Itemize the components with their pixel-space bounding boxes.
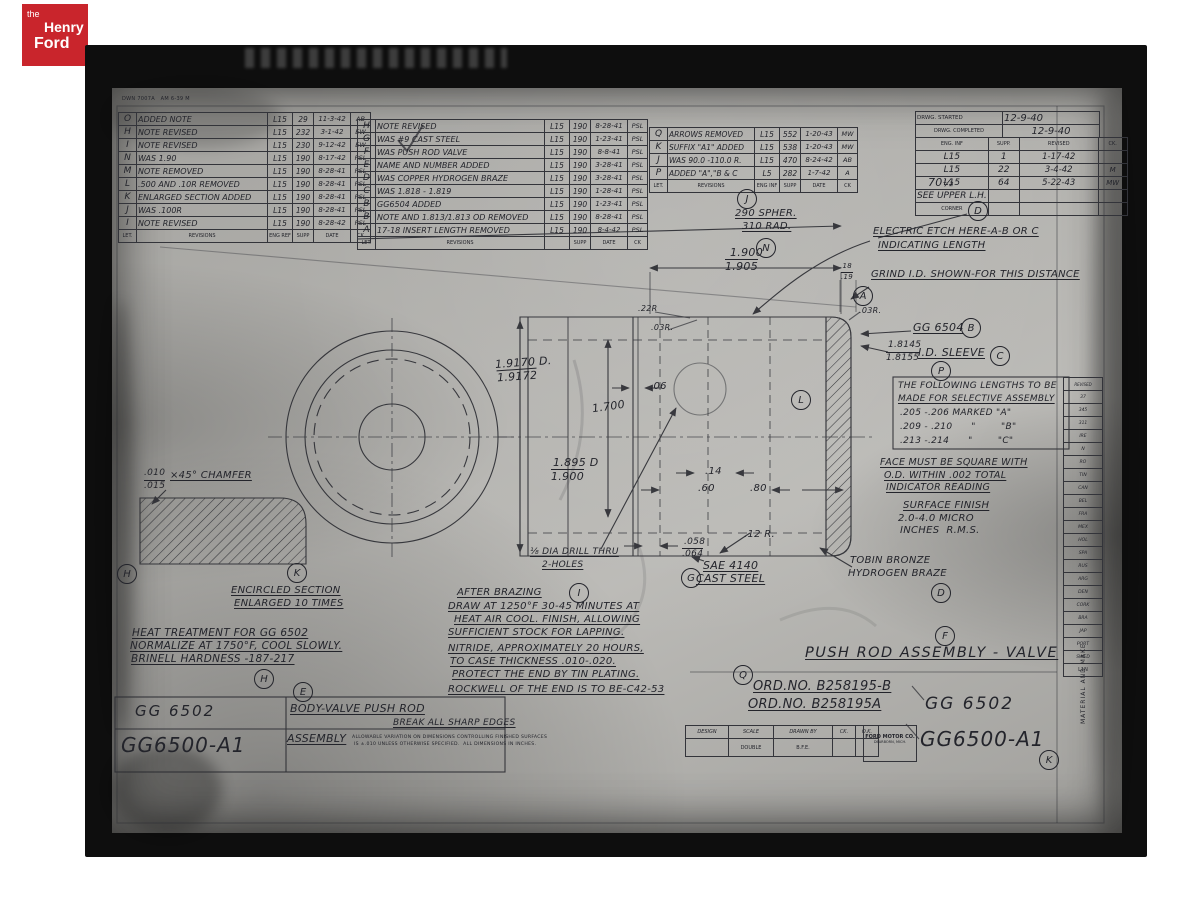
table-cell: 190 — [293, 191, 314, 204]
note-rockwell: ROCKWELL OF THE END IS TO BE-C42-53 — [448, 684, 664, 695]
table-cell: 8-8-41 — [591, 146, 628, 159]
note-surface-1: SURFACE FINISH — [903, 500, 989, 511]
table-cell: CK — [628, 237, 648, 250]
table-cell: 1-17-42 — [1019, 151, 1098, 164]
table-cell: 190 — [293, 152, 314, 165]
form-number: DWN 7007A AM 6-39 M — [122, 96, 190, 102]
table-cell: L15 — [268, 204, 293, 217]
title-gg6502: GG 6502 — [925, 694, 1014, 714]
table-cell — [1098, 151, 1127, 164]
note-etch-2: INDICATING LENGTH — [878, 240, 986, 251]
table-cell: DATE — [591, 237, 628, 250]
dim-length-upper: 1.900 — [730, 246, 763, 259]
table-cell: L15 — [755, 154, 780, 167]
distribution-strip-table: REVISED37345311IRENROTINCANBELFRAMEXHOLS… — [1063, 377, 1103, 677]
scan-blotch — [112, 745, 222, 833]
table-cell: LET. — [119, 230, 137, 243]
table-cell: MW — [838, 141, 858, 154]
note-nitride-2: TO CASE THICKNESS .010-.020. — [450, 656, 616, 667]
table-cell: WAS .100R — [137, 204, 268, 217]
table-cell: M — [119, 165, 137, 178]
dim-19: .19 — [841, 272, 853, 281]
table-cell: 1-7-42 — [801, 167, 838, 180]
table-cell: CK. — [1098, 138, 1127, 151]
ford-motor-co-cell: FORD MOTOR CO. DEARBORN, MICH. — [863, 725, 917, 762]
dim-60: .60 — [698, 483, 715, 494]
table-cell: 552 — [780, 128, 801, 141]
part-number-gg6500a1: GG6500-A1 — [121, 733, 246, 757]
table-cell: L15 — [545, 224, 570, 237]
note-nitride-1: NITRIDE, APPROXIMATELY 20 HOURS, — [448, 643, 644, 654]
table-cell: 8-4-42 — [591, 224, 628, 237]
table-cell: 8-28-42 — [314, 217, 351, 230]
table-cell: WAS 1.90 — [137, 152, 268, 165]
note-id-sleeve: I.D. SLEEVE — [918, 346, 985, 359]
table-cell: 8-24-42 — [801, 154, 838, 167]
dim-12r: .12 R. — [744, 529, 775, 540]
note-selective-3: .205 -.206 MARKED "A" — [900, 408, 1011, 418]
note-surface-3: INCHES R.M.S. — [900, 525, 980, 536]
table-cell: 8-28-41 — [591, 211, 628, 224]
table-cell: MW — [1098, 177, 1127, 190]
table-cell — [833, 739, 856, 757]
table-cell: 190 — [570, 146, 591, 159]
note-sae-1: SAE 4140 — [703, 559, 758, 572]
table-cell: 22 — [988, 164, 1019, 177]
dim-chamfer-lower: .015 — [144, 480, 165, 491]
callout-K: K — [287, 563, 307, 583]
table-cell: 3-28-41 — [591, 159, 628, 172]
table-cell: REVISED — [1064, 378, 1103, 391]
note-selective-1: THE FOLLOWING LENGTHS TO BE — [898, 381, 1057, 391]
table-cell: 190 — [293, 217, 314, 230]
table-cell: 8-28-41 — [314, 178, 351, 191]
table-cell: ENLARGED SECTION ADDED — [137, 191, 268, 204]
table-cell: A — [358, 224, 376, 237]
table-cell: C — [358, 185, 376, 198]
table-cell: L15 — [545, 133, 570, 146]
table-cell: 190 — [570, 211, 591, 224]
table-cell: PSL — [628, 120, 648, 133]
table-cell: N — [1064, 443, 1103, 456]
table-cell: 230 — [293, 139, 314, 152]
note-tobin-1: TOBIN BRONZE — [850, 555, 930, 566]
table-cell: SUPP — [570, 237, 591, 250]
table-cell: L15 — [545, 146, 570, 159]
table-cell: CK. — [833, 726, 856, 739]
table-cell: L15 — [545, 211, 570, 224]
table-cell: 190 — [570, 120, 591, 133]
note-chamfer: ×45° CHAMFER — [170, 470, 252, 481]
dim-sleeve-upper: 1.8145 — [888, 340, 921, 350]
table-cell: L15 — [268, 191, 293, 204]
dim-064: .064 — [682, 548, 703, 559]
scan-blotch — [108, 300, 134, 730]
table-cell — [988, 190, 1019, 203]
dim-sphere-rad2: 310 RAD. — [742, 221, 791, 232]
table-cell: DRWG. STARTED — [916, 112, 1003, 125]
dim-06: .06 — [650, 381, 667, 392]
table-cell: DRWG. COMPLETED — [916, 125, 1003, 138]
table-cell: PSL — [628, 159, 648, 172]
logo-ford: Ford — [34, 36, 70, 52]
table-cell: PSL — [628, 185, 648, 198]
table-cell: 190 — [293, 204, 314, 217]
callout-E: E — [293, 682, 313, 702]
note-selective-5: .213 -.214 " "C" — [900, 436, 1013, 446]
table-cell: 311 — [1064, 417, 1103, 430]
note-braz-1: DRAW AT 1250°F 30-45 MINUTES AT — [448, 601, 639, 612]
drawing-dates-table: DRWG. STARTED12-9-40DRWG. COMPLETED12-9-… — [915, 111, 1100, 138]
note-nitride-3: PROTECT THE END BY TIN PLATING. — [452, 669, 640, 680]
ord-number-2: ORD.NO. B258195A — [748, 697, 881, 712]
table-cell: PSL — [628, 133, 648, 146]
table-cell: L15 — [268, 165, 293, 178]
table-cell: TIN — [1064, 469, 1103, 482]
revision-table-middle: HNOTE REVISEDL151908-28-41PSLGWAS #9 CAS… — [357, 119, 648, 250]
note-break-edges: BREAK ALL SHARP EDGES — [393, 718, 516, 728]
table-cell: DATE — [314, 230, 351, 243]
table-cell: MEX — [1064, 521, 1103, 534]
table-cell: F — [358, 146, 376, 159]
table-cell: P — [650, 167, 668, 180]
note-heat-3: BRINELL HARDNESS -187-217 — [131, 653, 295, 665]
table-cell: 1 — [988, 151, 1019, 164]
table-cell: BRA — [1064, 612, 1103, 625]
table-cell: Q — [650, 128, 668, 141]
note-selective-2: MADE FOR SELECTIVE ASSEMBLY — [898, 394, 1055, 404]
table-cell: 5-22-43 — [1019, 177, 1098, 190]
table-cell: L15 — [916, 164, 989, 177]
dim-bore-lower: 1.900 — [551, 469, 584, 483]
table-cell: 1-20-43 — [801, 128, 838, 141]
table-cell: SUPP. — [988, 138, 1019, 151]
table-cell: 190 — [570, 159, 591, 172]
table-cell: L15 — [268, 178, 293, 191]
part-number-gg6502: GG 6502 — [135, 702, 215, 720]
callout-H2: H — [254, 669, 274, 689]
table-cell: K — [119, 191, 137, 204]
table-cell: IRE — [1064, 430, 1103, 443]
dim-chamfer-upper: .010 — [144, 468, 165, 478]
table-cell: 1-28-41 — [591, 185, 628, 198]
table-cell: SPA — [1064, 547, 1103, 560]
table-cell: PSL — [628, 146, 648, 159]
note-braz-3: SUFFICIENT STOCK FOR LAPPING. — [448, 627, 624, 638]
table-cell: NOTE REVISED — [376, 120, 545, 133]
title-block-table: DESIGNSCALEDRAWN BYCK.O.K.DOUBLEB.F.E. — [685, 725, 879, 757]
note-after-brazing: AFTER BRAZING — [457, 587, 542, 598]
table-cell: HOL — [1064, 534, 1103, 547]
table-cell: DEN — [1064, 586, 1103, 599]
table-cell: JAP — [1064, 625, 1103, 638]
table-cell: 538 — [780, 141, 801, 154]
table-cell: L15 — [268, 126, 293, 139]
table-cell: B — [358, 211, 376, 224]
table-cell: L15 — [755, 128, 780, 141]
logo-the: the — [27, 10, 40, 19]
table-cell: N — [119, 152, 137, 165]
dim-length-lower: 1.905 — [725, 259, 758, 273]
callout-H: H — [117, 564, 137, 584]
table-cell: B.F.E. — [774, 739, 833, 757]
part-name-body: BODY-VALVE PUSH ROD — [290, 702, 425, 715]
table-cell: RO — [1064, 456, 1103, 469]
table-cell: L15 — [545, 172, 570, 185]
table-cell: O — [119, 113, 137, 126]
table-cell: L15 — [916, 151, 989, 164]
table-cell: GG6504 ADDED — [376, 198, 545, 211]
table-cell: 190 — [570, 133, 591, 146]
note-tobin-2: HYDROGEN BRAZE — [848, 568, 947, 579]
table-cell: ARROWS REMOVED — [668, 128, 755, 141]
dim-18: .18 — [840, 262, 852, 270]
callout-F: F — [935, 626, 955, 646]
callout-C: C — [990, 346, 1010, 366]
table-cell: 345 — [1064, 404, 1103, 417]
table-cell: 232 — [293, 126, 314, 139]
note-etch-1: ELECTRIC ETCH HERE-A-B OR C — [873, 226, 1039, 237]
table-cell: CAN — [1064, 482, 1103, 495]
table-cell: L15 — [268, 113, 293, 126]
note-surface-2: 2.0-4.0 MICRO — [898, 513, 974, 524]
table-cell: 190 — [293, 165, 314, 178]
table-cell: WAS 90.0 -110.0 R. — [668, 154, 755, 167]
table-cell: ADDED "A","B & C — [668, 167, 755, 180]
dim-058: .058 — [684, 537, 705, 547]
table-cell: L15 — [268, 152, 293, 165]
table-cell: J — [650, 154, 668, 167]
table-cell: LET. — [650, 180, 668, 193]
note-drill2: 2-HOLES — [542, 560, 583, 570]
table-cell: K — [650, 141, 668, 154]
table-cell: .500 AND .10R REMOVED — [137, 178, 268, 191]
handwritten-70: 70½ — [928, 176, 954, 189]
table-cell: M — [1098, 164, 1127, 177]
table-cell: E — [358, 159, 376, 172]
table-cell: 29 — [293, 113, 314, 126]
dim-03r-right: .03R. — [859, 306, 881, 315]
callout-I: I — [569, 583, 589, 603]
table-cell — [545, 237, 570, 250]
table-cell: A — [838, 167, 858, 180]
callout-B: B — [961, 318, 981, 338]
note-drill: ⅛ DIA DRILL THRU — [530, 547, 619, 557]
table-cell: 12-9-40 — [1003, 112, 1100, 125]
table-cell: 17-18 INSERT LENGTH REMOVED — [376, 224, 545, 237]
henry-ford-logo: the Henry Ford — [22, 4, 88, 66]
table-cell: L15 — [268, 139, 293, 152]
table-cell: LET. — [358, 237, 376, 250]
table-cell: L15 — [268, 217, 293, 230]
table-cell: L — [119, 178, 137, 191]
callout-L: L — [791, 390, 811, 410]
table-cell: L5 — [755, 167, 780, 180]
table-cell: WAS 1.818 - 1.819 — [376, 185, 545, 198]
table-cell: WAS #9 CAST STEEL — [376, 133, 545, 146]
table-cell: 37 — [1064, 391, 1103, 404]
note-encircled-1: ENCIRCLED SECTION — [231, 585, 341, 596]
table-cell: L15 — [545, 159, 570, 172]
table-cell: DOUBLE — [729, 739, 774, 757]
table-cell — [1098, 203, 1127, 216]
part-name-assembly: ASSEMBLY — [287, 732, 346, 745]
table-cell: NAME AND NUMBER ADDED — [376, 159, 545, 172]
table-cell: WAS PUSH ROD VALVE — [376, 146, 545, 159]
callout-K2: K — [1039, 750, 1059, 770]
table-cell: 8-17-42 — [314, 152, 351, 165]
dim-od-lower: 1.9172 — [497, 368, 538, 385]
table-cell: I — [119, 139, 137, 152]
table-cell: L15 — [545, 120, 570, 133]
table-cell: SUPP — [293, 230, 314, 243]
table-cell: H — [358, 120, 376, 133]
table-cell: ENG INF — [755, 180, 780, 193]
table-cell: RUS — [1064, 560, 1103, 573]
table-cell: ENG REF — [268, 230, 293, 243]
table-cell: SUFFIX "A1" ADDED — [668, 141, 755, 154]
dim-sphere-rad: 290 SPHER. — [735, 208, 797, 219]
note-selective-4: .209 - .210 " "B" — [900, 422, 1016, 432]
table-cell: SUPP — [780, 180, 801, 193]
table-cell: I — [119, 217, 137, 230]
dim-80: .80 — [750, 483, 767, 494]
callout-P: P — [931, 361, 951, 381]
table-cell: NOTE REVISED — [137, 126, 268, 139]
table-cell: 9-12-42 — [314, 139, 351, 152]
note-grind: GRIND I.D. SHOWN-FOR THIS DISTANCE — [871, 269, 1080, 280]
table-cell: 1-23-41 — [591, 198, 628, 211]
table-cell: 64 — [988, 177, 1019, 190]
table-cell: WAS COPPER HYDROGEN BRAZE — [376, 172, 545, 185]
callout-D2: D — [931, 583, 951, 603]
table-cell: DESIGN — [686, 726, 729, 739]
material-and-make-label: MATERIAL AND MAKE — [1080, 642, 1087, 724]
table-cell: 190 — [570, 198, 591, 211]
note-heat-2: NORMALIZE AT 1750°F, COOL SLOWLY. — [130, 640, 342, 652]
table-cell: 8-28-41 — [314, 191, 351, 204]
table-cell: 3-28-41 — [591, 172, 628, 185]
table-cell: J — [119, 204, 137, 217]
table-cell: CORK — [1064, 599, 1103, 612]
callout-J: J — [737, 189, 757, 209]
table-cell: SCALE — [729, 726, 774, 739]
table-cell: 3-4-42 — [1019, 164, 1098, 177]
table-cell: 190 — [570, 185, 591, 198]
table-cell: DRAWN BY — [774, 726, 833, 739]
dim-03r-left: .03R. — [651, 323, 673, 332]
fine-print-2: IS ±.010 UNLESS OTHERWISE SPECIFIED. ALL… — [354, 742, 536, 747]
table-cell: L15 — [545, 185, 570, 198]
callout-D: D — [968, 201, 988, 221]
table-cell — [1098, 190, 1127, 203]
ord-number-1: ORD.NO. B258195-B — [753, 679, 891, 694]
table-cell: H — [119, 126, 137, 139]
note-face-1: FACE MUST BE SQUARE WITH — [880, 457, 1028, 468]
note-sae-2: CAST STEEL — [696, 572, 765, 585]
table-cell: AB — [838, 154, 858, 167]
table-cell — [1019, 190, 1098, 203]
note-braz-2: HEAT AIR COOL. FINISH, ALLOWING — [454, 614, 640, 625]
table-cell: NOTE REMOVED — [137, 165, 268, 178]
table-cell: FRA — [1064, 508, 1103, 521]
table-cell: 8-28-41 — [314, 204, 351, 217]
scanned-engineering-drawing: the Henry Ford — [0, 0, 1200, 900]
table-cell: 8-28-41 — [314, 165, 351, 178]
table-cell: CK — [838, 180, 858, 193]
table-cell: REVISIONS — [137, 230, 268, 243]
table-cell: 1-23-41 — [591, 133, 628, 146]
table-cell — [686, 739, 729, 757]
table-cell: PSL — [628, 198, 648, 211]
table-cell: 470 — [780, 154, 801, 167]
ford-city: DEARBORN, MICH. — [864, 740, 916, 744]
table-cell: 11-3-42 — [314, 113, 351, 126]
ghost-writing-smudge — [245, 48, 507, 68]
table-cell: ADDED NOTE — [137, 113, 268, 126]
dim-22r: .22R — [638, 304, 657, 313]
table-cell: B — [358, 198, 376, 211]
dim-sleeve-lower: 1.8155 — [886, 352, 919, 363]
table-cell: 8-28-41 — [591, 120, 628, 133]
table-cell: 190 — [570, 172, 591, 185]
table-cell: NOTE REVISED — [137, 217, 268, 230]
table-cell: L15 — [755, 141, 780, 154]
revision-table-right: QARROWS REMOVEDL155521-20-43MWKSUFFIX "A… — [649, 127, 858, 193]
table-cell: 12-9-40 — [1003, 125, 1100, 138]
dim-14: .14 — [705, 466, 722, 477]
table-cell: 282 — [780, 167, 801, 180]
table-cell: BEL — [1064, 495, 1103, 508]
note-encircled-2: ENLARGED 10 TIMES — [234, 598, 343, 609]
callout-A: A — [853, 286, 873, 306]
table-cell: ARG — [1064, 573, 1103, 586]
note-face-2: O.D. WITHIN .002 TOTAL — [884, 470, 1006, 481]
table-cell: MW — [838, 128, 858, 141]
table-cell: L15 — [545, 198, 570, 211]
table-cell: 190 — [570, 224, 591, 237]
table-cell: G — [358, 133, 376, 146]
table-cell: ENG. INF — [916, 138, 989, 151]
table-cell: 1-20-43 — [801, 141, 838, 154]
table-cell: REVISED — [1019, 138, 1098, 151]
table-cell: 3-1-42 — [314, 126, 351, 139]
title-gg6500a1: GG6500-A1 — [920, 727, 1045, 751]
table-cell: PSL — [628, 224, 648, 237]
callout-Q: Q — [733, 665, 753, 685]
table-cell: PSL — [628, 172, 648, 185]
table-cell: D — [358, 172, 376, 185]
table-cell: PSL — [628, 211, 648, 224]
revision-table-left: OADDED NOTEL152911-3-42ABHNOTE REVISEDL1… — [118, 112, 371, 243]
dim-bore-upper: 1.895 D — [553, 456, 599, 469]
fine-print-1: ALLOWABLE VARIATION ON DIMENSIONS CONTRO… — [352, 735, 547, 740]
table-cell — [988, 203, 1019, 216]
table-cell: NOTE REVISED — [137, 139, 268, 152]
table-cell: REVISIONS — [376, 237, 545, 250]
note-gg6504: GG 6504 — [913, 321, 964, 334]
table-cell: NOTE AND 1.813/1.813 OD REMOVED — [376, 211, 545, 224]
note-heat-1: HEAT TREATMENT FOR GG 6502 — [132, 627, 308, 639]
table-cell: 190 — [293, 178, 314, 191]
drawing-title: PUSH ROD ASSEMBLY - VALVE — [805, 645, 1058, 661]
note-face-3: INDICATOR READING — [886, 482, 990, 493]
table-cell — [1019, 203, 1098, 216]
logo-henry: Henry — [44, 20, 84, 34]
table-cell: DATE — [801, 180, 838, 193]
